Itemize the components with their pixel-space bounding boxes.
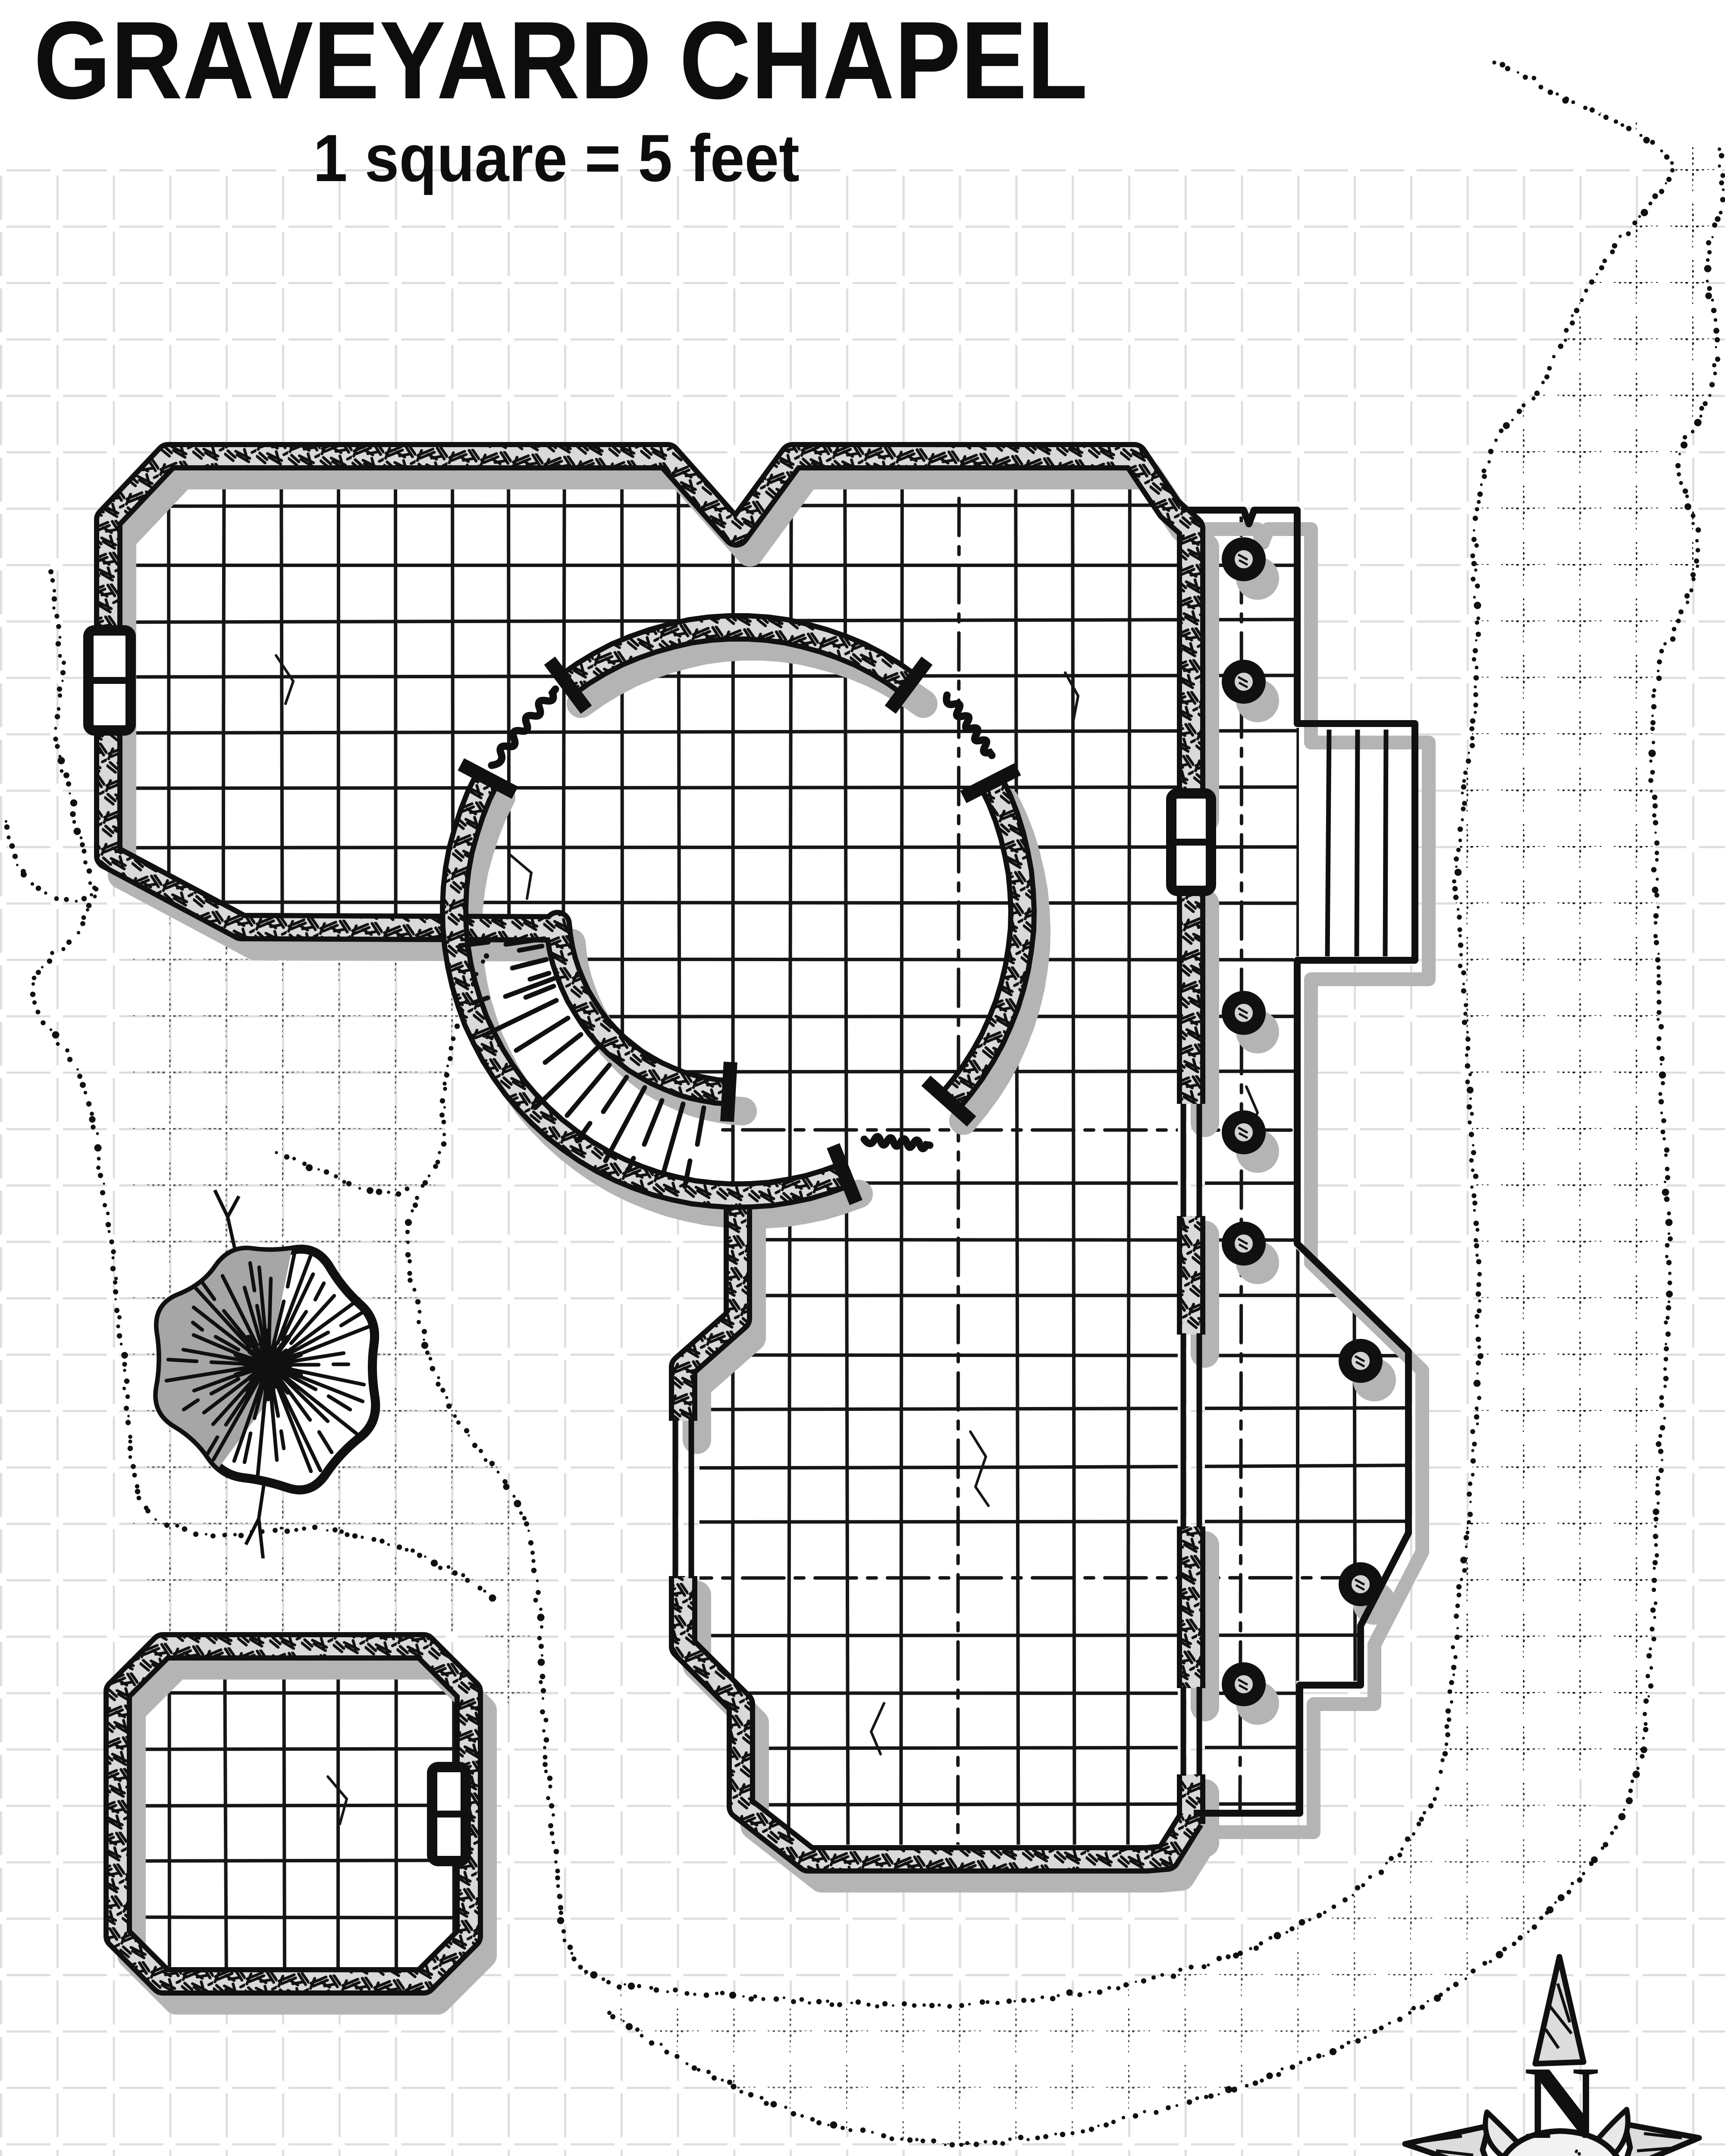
svg-text:1 square = 5 feet: 1 square = 5 feet bbox=[313, 121, 800, 195]
svg-text:GRAVEYARD CHAPEL: GRAVEYARD CHAPEL bbox=[34, 0, 1088, 122]
svg-text:N: N bbox=[1524, 2045, 1600, 2156]
